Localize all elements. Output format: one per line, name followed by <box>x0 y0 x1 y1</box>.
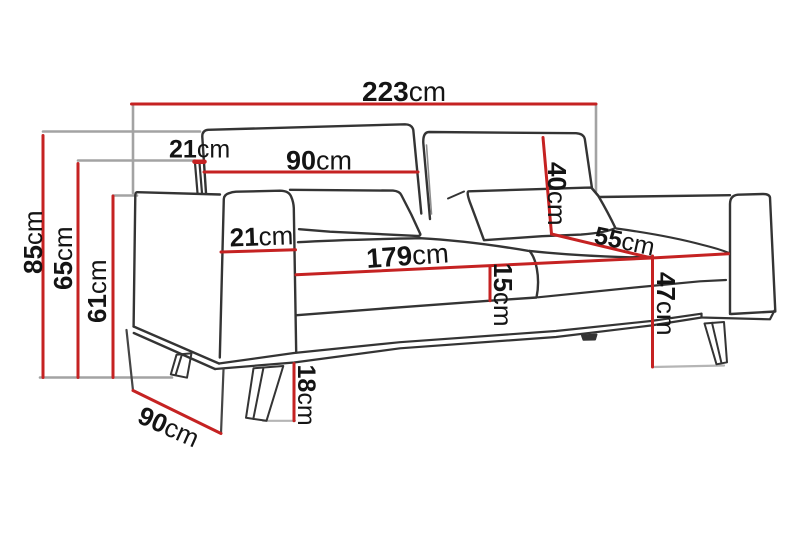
svg-text:47cm: 47cm <box>651 272 681 336</box>
svg-text:223cm: 223cm <box>362 76 446 107</box>
svg-text:40cm: 40cm <box>542 162 572 226</box>
svg-text:90cm: 90cm <box>286 146 352 176</box>
svg-text:85cm: 85cm <box>18 210 48 274</box>
svg-text:65cm: 65cm <box>48 226 78 290</box>
svg-text:21cm: 21cm <box>229 220 294 252</box>
svg-text:15cm: 15cm <box>488 263 518 327</box>
svg-text:21cm: 21cm <box>169 136 230 164</box>
svg-text:61cm: 61cm <box>82 259 112 323</box>
svg-text:179cm: 179cm <box>365 237 450 274</box>
svg-text:18cm: 18cm <box>292 365 320 426</box>
